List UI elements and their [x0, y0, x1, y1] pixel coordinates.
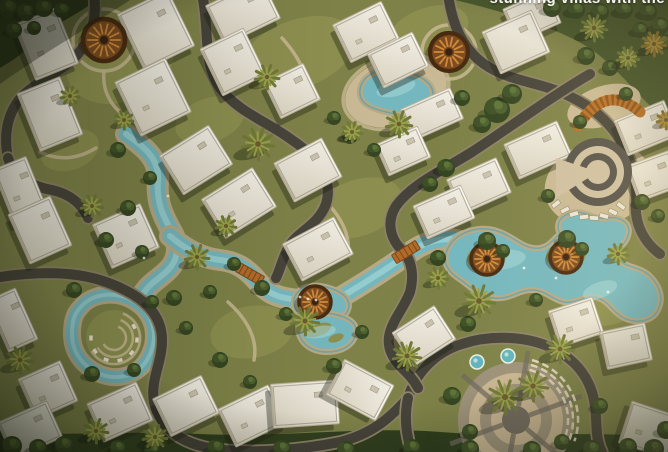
- lighting-overlays: [0, 0, 668, 452]
- masterplan-canvas: [0, 0, 668, 452]
- watermark-text: stunning villas with the: [490, 0, 665, 7]
- masterplan-render: stunning villas with the: [0, 0, 668, 452]
- vignette-overlay: [0, 0, 668, 452]
